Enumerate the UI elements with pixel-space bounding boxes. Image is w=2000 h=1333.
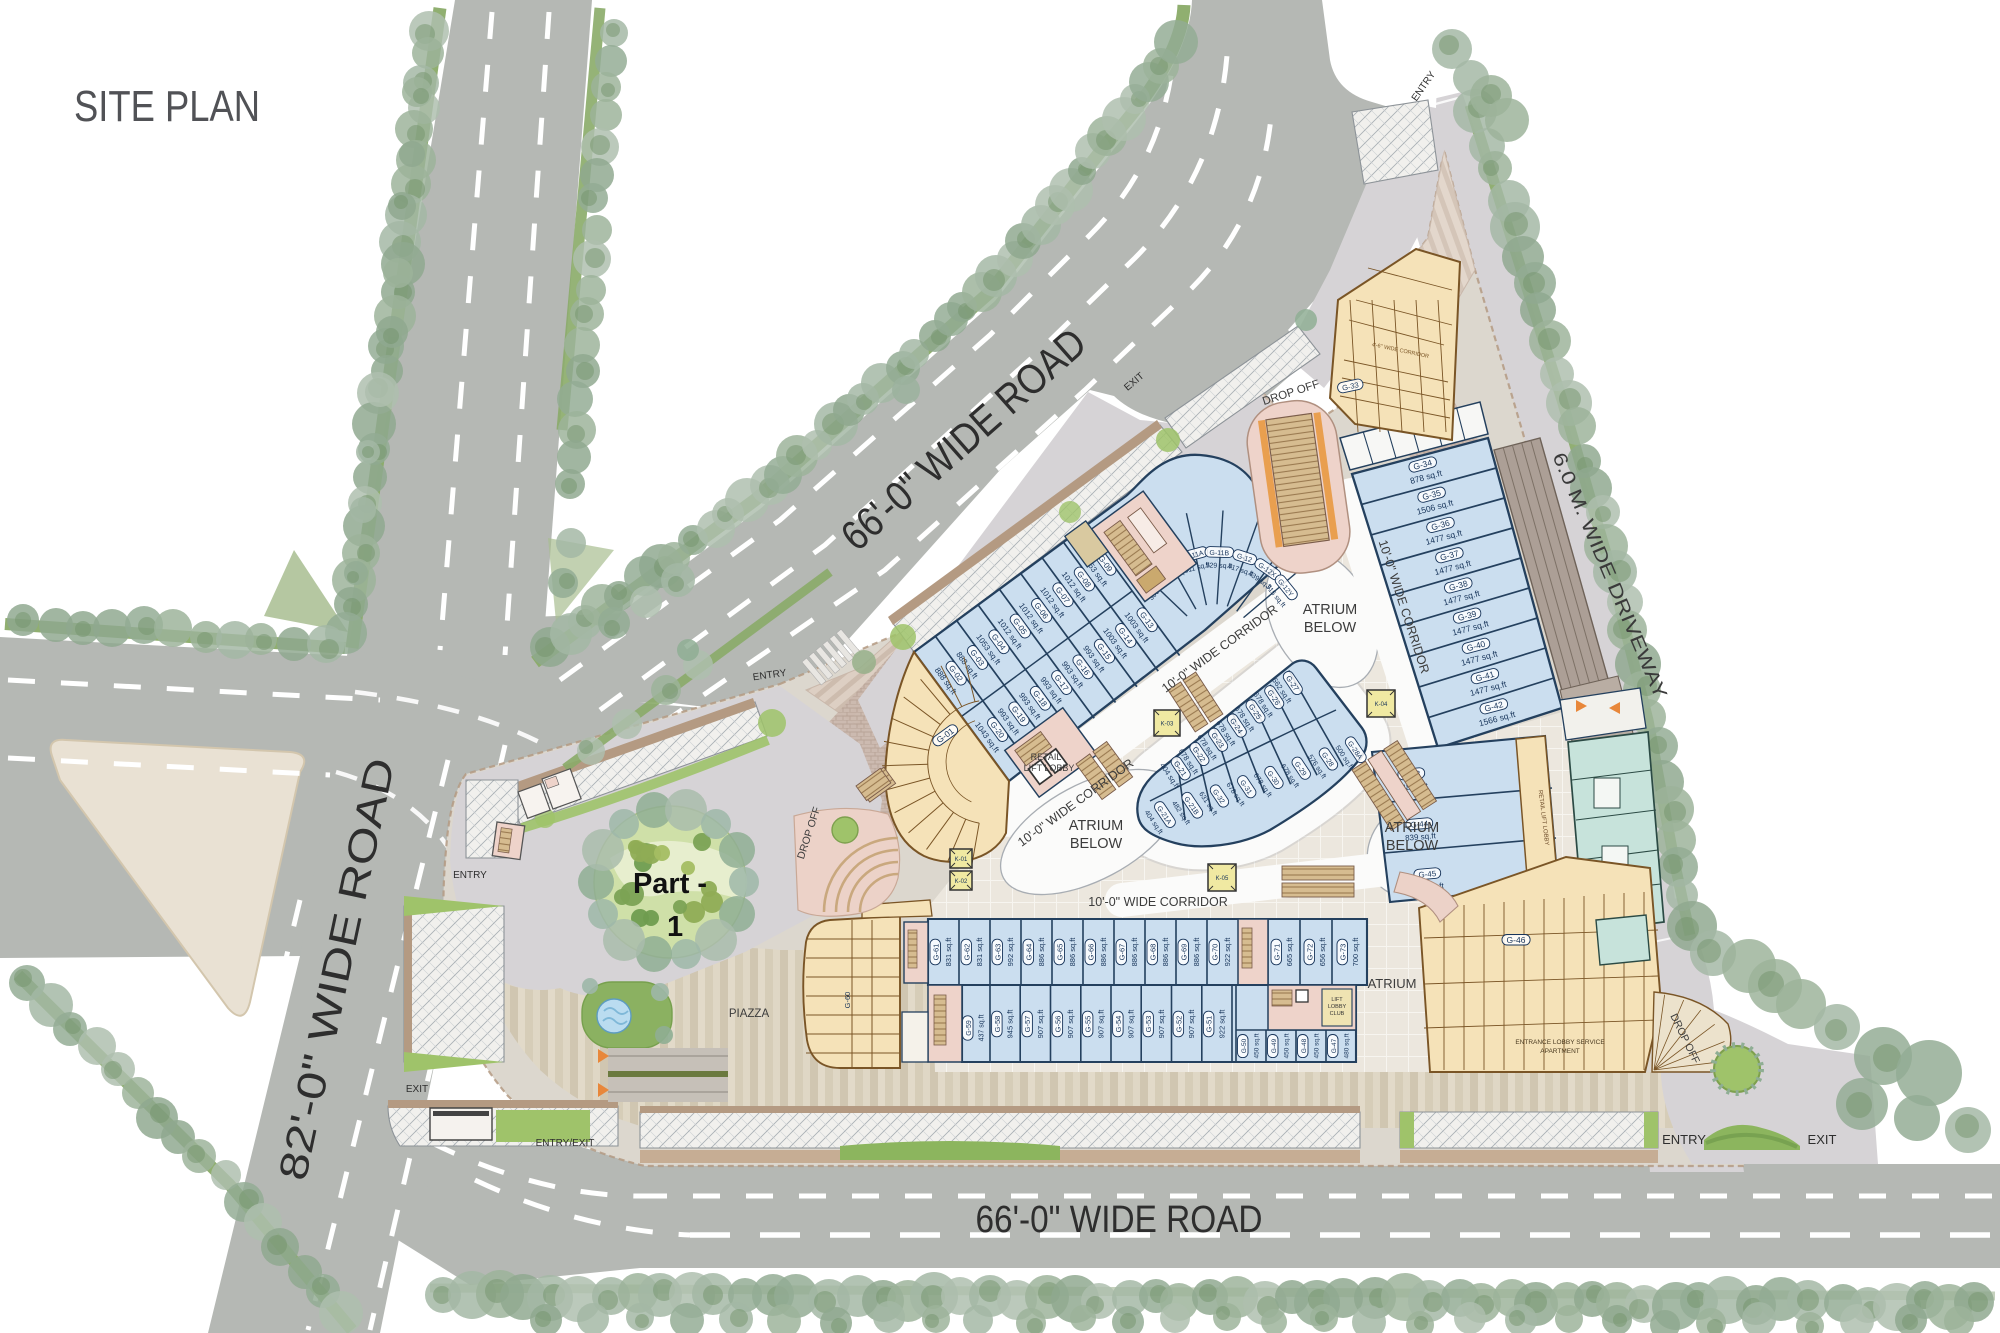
svg-text:G-54: G-54 <box>1114 1016 1123 1033</box>
svg-text:ATRIUM: ATRIUM <box>1368 976 1417 991</box>
svg-text:LIFT LOBBY: LIFT LOBBY <box>1024 763 1075 773</box>
svg-text:480 sq.ft: 480 sq.ft <box>1344 1033 1351 1058</box>
svg-text:G-71: G-71 <box>1272 944 1281 961</box>
svg-text:G-62: G-62 <box>962 944 971 961</box>
svg-text:G-49: G-49 <box>1271 1038 1278 1053</box>
svg-text:LIFT: LIFT <box>1331 997 1343 1003</box>
svg-text:G-64: G-64 <box>1024 944 1033 961</box>
svg-text:RETAIL: RETAIL <box>1031 752 1062 762</box>
svg-text:G-65: G-65 <box>1055 944 1064 961</box>
svg-text:G-52: G-52 <box>1174 1016 1183 1033</box>
svg-text:886 sq.ft: 886 sq.ft <box>1161 937 1170 967</box>
svg-text:K-04: K-04 <box>1375 702 1388 708</box>
svg-text:SITE PLAN: SITE PLAN <box>74 82 260 131</box>
svg-text:450 sq.ft: 450 sq.ft <box>1314 1033 1321 1058</box>
svg-text:ATRIUM: ATRIUM <box>1303 602 1358 618</box>
svg-text:886 sq.ft: 886 sq.ft <box>1068 937 1077 967</box>
svg-text:1: 1 <box>667 911 683 943</box>
svg-text:886 sq.ft: 886 sq.ft <box>1099 937 1108 967</box>
svg-text:BELOW: BELOW <box>1304 620 1357 636</box>
svg-text:ENTRY/EXIT: ENTRY/EXIT <box>536 1138 595 1149</box>
svg-text:G-63: G-63 <box>993 944 1002 961</box>
svg-text:Part -: Part - <box>633 868 707 900</box>
svg-text:700 sq.ft: 700 sq.ft <box>1351 937 1360 967</box>
svg-text:K-02: K-02 <box>955 879 968 885</box>
svg-text:ATRIUM: ATRIUM <box>1385 820 1440 836</box>
svg-text:K-01: K-01 <box>955 857 968 863</box>
svg-text:450 sq.ft: 450 sq.ft <box>1254 1033 1261 1058</box>
svg-text:450 sq.ft: 450 sq.ft <box>1284 1033 1291 1058</box>
svg-text:G-67: G-67 <box>1117 944 1126 961</box>
svg-text:BELOW: BELOW <box>1070 836 1123 852</box>
svg-text:907 sq.ft: 907 sq.ft <box>1066 1009 1075 1039</box>
svg-text:G-57: G-57 <box>1023 1016 1032 1033</box>
svg-text:G-58: G-58 <box>993 1016 1002 1033</box>
svg-text:437 sq.ft: 437 sq.ft <box>979 1015 986 1042</box>
svg-text:886 sq.ft: 886 sq.ft <box>1192 937 1201 967</box>
svg-text:LOBBY: LOBBY <box>1328 1004 1347 1010</box>
svg-text:665 sq.ft: 665 sq.ft <box>1285 937 1294 967</box>
svg-text:BELOW: BELOW <box>1386 838 1439 854</box>
svg-text:K-05: K-05 <box>1216 876 1229 882</box>
svg-text:G-56: G-56 <box>1053 1016 1062 1033</box>
svg-text:K-03: K-03 <box>1161 721 1174 727</box>
svg-text:G-47: G-47 <box>1331 1038 1338 1053</box>
svg-text:EXIT: EXIT <box>1808 1132 1837 1147</box>
svg-text:G-60: G-60 <box>843 992 852 1009</box>
svg-text:APARTMENT: APARTMENT <box>1540 1048 1580 1055</box>
svg-text:10'-0" WIDE CORRIDOR: 10'-0" WIDE CORRIDOR <box>1088 895 1227 909</box>
svg-text:907 sq.ft: 907 sq.ft <box>1127 1009 1136 1039</box>
svg-text:831 sq.ft: 831 sq.ft <box>944 937 953 967</box>
svg-text:EXIT: EXIT <box>406 1084 428 1095</box>
svg-text:922 sq.ft: 922 sq.ft <box>1223 937 1232 967</box>
svg-text:PIAZZA: PIAZZA <box>729 1008 770 1020</box>
svg-text:922 sq.ft: 922 sq.ft <box>1217 1009 1226 1039</box>
svg-text:G-59: G-59 <box>966 1020 973 1036</box>
svg-text:945 sq.ft: 945 sq.ft <box>1006 1009 1015 1039</box>
svg-text:G-55: G-55 <box>1084 1016 1093 1033</box>
svg-text:G-73: G-73 <box>1338 944 1347 961</box>
svg-text:656 sq.ft: 656 sq.ft <box>1318 937 1327 967</box>
svg-text:CLUB: CLUB <box>1330 1011 1345 1017</box>
svg-text:G-70: G-70 <box>1210 944 1219 961</box>
svg-text:G-48: G-48 <box>1301 1038 1308 1053</box>
svg-text:ENTRANCE LOBBY SERVICE: ENTRANCE LOBBY SERVICE <box>1515 1039 1605 1046</box>
svg-text:G-69: G-69 <box>1179 944 1188 961</box>
svg-text:ENTRY: ENTRY <box>453 870 487 881</box>
svg-text:886 sq.ft: 886 sq.ft <box>1037 937 1046 967</box>
svg-text:G-61: G-61 <box>931 944 940 961</box>
svg-text:66'-0" WIDE ROAD: 66'-0" WIDE ROAD <box>976 1199 1263 1241</box>
svg-text:G-53: G-53 <box>1144 1016 1153 1033</box>
svg-text:G-11B: G-11B <box>1209 550 1229 558</box>
svg-text:992 sq.ft: 992 sq.ft <box>1006 937 1015 967</box>
svg-text:G-51: G-51 <box>1205 1016 1214 1033</box>
svg-text:907 sq.ft: 907 sq.ft <box>1096 1009 1105 1039</box>
svg-text:ATRIUM: ATRIUM <box>1069 818 1124 834</box>
svg-text:ENTRY: ENTRY <box>1662 1132 1706 1147</box>
svg-text:G-66: G-66 <box>1086 944 1095 961</box>
svg-text:907 sq.ft: 907 sq.ft <box>1157 1009 1166 1039</box>
svg-text:G-72: G-72 <box>1305 944 1314 961</box>
svg-text:886 sq.ft: 886 sq.ft <box>1130 937 1139 967</box>
svg-text:G-46: G-46 <box>1507 935 1526 945</box>
svg-text:G-50: G-50 <box>1241 1038 1248 1053</box>
svg-text:907 sq.ft: 907 sq.ft <box>1187 1009 1196 1039</box>
svg-text:G-68: G-68 <box>1148 944 1157 961</box>
svg-text:907 sq.ft: 907 sq.ft <box>1036 1009 1045 1039</box>
svg-text:831 sq.ft: 831 sq.ft <box>975 937 984 967</box>
